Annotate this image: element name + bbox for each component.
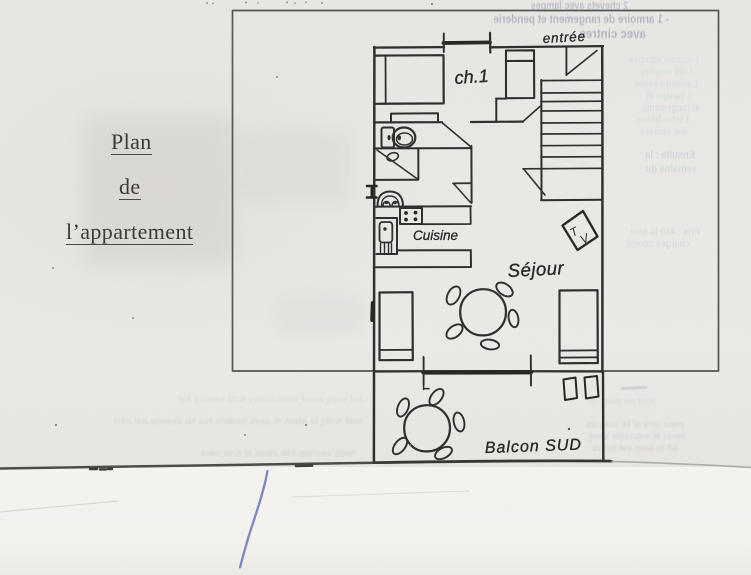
svg-text:V: V: [578, 230, 592, 247]
svg-text:Balcon SUD: Balcon SUD: [485, 437, 583, 457]
svg-text:ch.1: ch.1: [454, 66, 489, 88]
svg-text:Cuisine: Cuisine: [413, 228, 458, 243]
svg-text:entrée: entrée: [542, 29, 586, 46]
svg-text:Séjour: Séjour: [507, 257, 565, 281]
